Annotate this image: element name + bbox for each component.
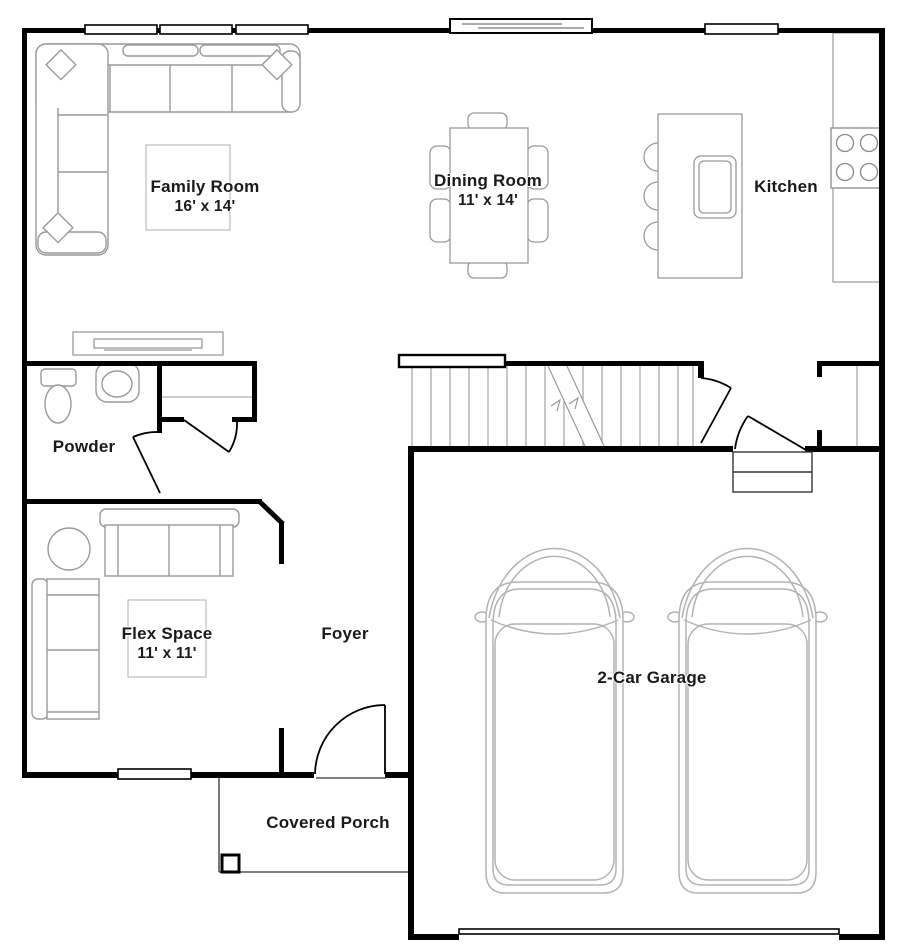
room-name: Flex Space bbox=[122, 624, 213, 644]
dining-room-label: Dining Room 11' x 14' bbox=[434, 171, 542, 211]
kitchen-label: Kitchen bbox=[754, 177, 818, 197]
family-room-label: Family Room 16' x 14' bbox=[151, 177, 260, 217]
garage-label: 2-Car Garage bbox=[597, 668, 706, 688]
room-name: Powder bbox=[53, 437, 116, 457]
room-name: Dining Room bbox=[434, 171, 542, 191]
covered-porch-label: Covered Porch bbox=[266, 813, 390, 833]
room-dimensions: 11' x 14' bbox=[434, 191, 542, 211]
floor-plan: Family Room 16' x 14' Dining Room 11' x … bbox=[0, 0, 900, 950]
room-name: Foyer bbox=[321, 624, 368, 644]
room-dimensions: 16' x 14' bbox=[151, 197, 260, 217]
foyer-label: Foyer bbox=[321, 624, 368, 644]
flex-space-label: Flex Space 11' x 11' bbox=[122, 624, 213, 664]
room-name: Family Room bbox=[151, 177, 260, 197]
room-name: Kitchen bbox=[754, 177, 818, 197]
room-name: 2-Car Garage bbox=[597, 668, 706, 688]
room-name: Covered Porch bbox=[266, 813, 390, 833]
room-dimensions: 11' x 11' bbox=[122, 644, 213, 664]
powder-label: Powder bbox=[53, 437, 116, 457]
room-labels: Family Room 16' x 14' Dining Room 11' x … bbox=[0, 0, 900, 950]
